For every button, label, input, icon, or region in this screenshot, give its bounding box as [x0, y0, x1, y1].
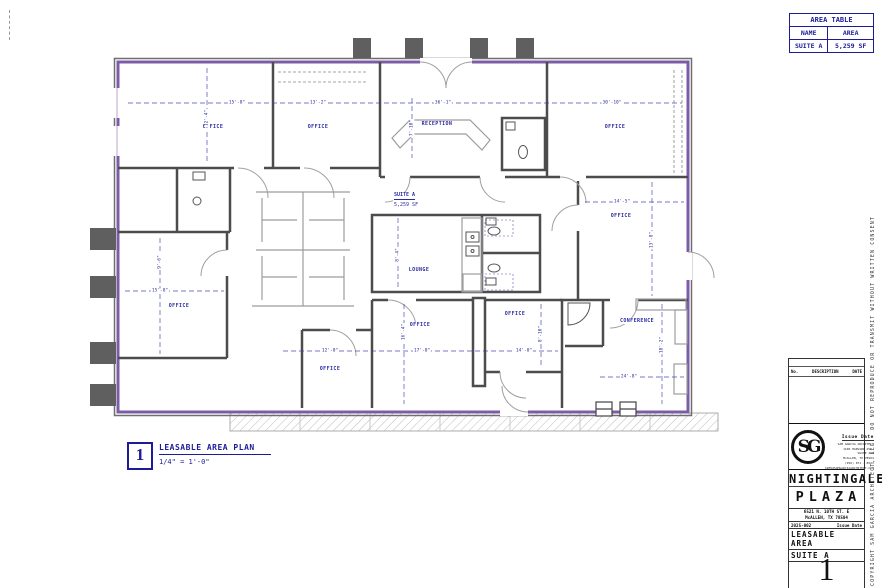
suite-area-label: SUITE A 5,259 SF	[393, 192, 419, 208]
title-block: No. DESCRIPTION DATE SG Issue Date SAM G…	[788, 358, 865, 588]
area-table-header: NAME AREA	[789, 27, 874, 40]
dimension-label: 12'-4"	[205, 109, 210, 127]
sheet-title-line1: LEASABLE AREA	[789, 529, 864, 550]
area-table-suite-name: SUITE A	[790, 40, 828, 52]
dimension-label: 7'-10"	[410, 119, 415, 137]
project-address: 6521 N. 10TH ST. E McALLEN, TX 78504	[789, 509, 864, 522]
dimension-label: 15'-8"	[151, 289, 169, 294]
copyright-strip: COPYRIGHT SAM GARCIA ARCHITECT, LLC - DO…	[866, 0, 880, 586]
dimension-label: 14'-5"	[613, 200, 631, 205]
sheet-title: LEASABLE AREA SUITE A	[789, 529, 864, 551]
room-label: OFFICE	[503, 311, 527, 317]
rev-col-date: DATE	[852, 369, 862, 374]
drawing-sheet: OFFICEOFFICERECEPTIONOFFICEOFFICECONFERE…	[0, 0, 882, 588]
dimension-label: 14'-0"	[515, 349, 533, 354]
room-label: OFFICE	[408, 322, 432, 328]
dimension-label: 30'-10"	[602, 101, 623, 106]
project-number: 2025-002	[791, 523, 811, 528]
room-label: CONFERENCE	[618, 318, 656, 324]
architect-logo: SG	[791, 430, 825, 464]
detail-number-box: 1	[127, 442, 153, 470]
floor-plan-drawing	[0, 0, 882, 588]
project-name-line2: PLAZA	[789, 487, 864, 505]
architect-stamp: SG Issue Date SAM GARCIA ARCHITECT 1100 …	[789, 424, 864, 470]
dimension-label: 13'-8"	[650, 231, 655, 249]
dimension-label: 15'-8"	[228, 101, 246, 106]
drawing-title: 1 LEASABLE AREA PLAN 1/4" = 1'-0"	[127, 442, 271, 470]
dimension-label: 24'-8"	[620, 375, 638, 380]
revision-table: No. DESCRIPTION DATE	[789, 359, 864, 424]
dimension-label: 36'-1"	[434, 101, 452, 106]
dimension-label: 8'-10"	[539, 325, 544, 343]
room-label: OFFICE	[306, 124, 330, 130]
dimension-label: 9'-6"	[158, 254, 163, 270]
dimension-label: 13'-2"	[309, 101, 327, 106]
project-name-line1: NIGHTINGALE	[789, 470, 864, 487]
room-label: OFFICE	[609, 213, 633, 219]
rev-col-no: No.	[791, 369, 798, 374]
copyright-text: COPYRIGHT SAM GARCIA ARCHITECT, LLC - DO…	[870, 216, 876, 586]
room-label: RECEPTION	[420, 121, 455, 127]
dimension-label: 16'-4"	[402, 323, 407, 341]
architect-logo-text: SG	[798, 437, 819, 457]
trim-mark	[9, 10, 15, 40]
room-label: OFFICE	[167, 303, 191, 309]
dimension-label: 8'-4"	[396, 247, 401, 263]
area-table-row: SUITE A 5,259 SF	[789, 40, 874, 53]
room-label: OFFICE	[318, 366, 342, 372]
project-meta: 2025-002 Issue Date	[789, 522, 864, 529]
dimension-label: 17'-0"	[413, 349, 431, 354]
area-table: AREA TABLE NAME AREA SUITE A 5,259 SF	[789, 13, 874, 53]
dimension-label: 18'-2"	[660, 336, 665, 354]
issue-date-label-2: Issue Date	[837, 523, 862, 528]
dimension-label: 12'-0"	[321, 349, 339, 354]
project-name: NIGHTINGALE PLAZA	[789, 470, 864, 509]
area-table-title: AREA TABLE	[789, 13, 874, 27]
drawing-scale: 1/4" = 1'-0"	[159, 455, 271, 466]
sheet-number: 1	[789, 551, 864, 588]
room-label: LOUNGE	[407, 267, 431, 273]
drawing-title-text: LEASABLE AREA PLAN	[159, 443, 271, 455]
suite-area-value: 5,259 SF	[394, 202, 418, 208]
area-table-col-name: NAME	[790, 27, 828, 39]
suite-name: SUITE A	[394, 192, 415, 200]
project-address-line2: McALLEN, TX 78504	[789, 515, 864, 521]
rev-col-description: DESCRIPTION	[812, 369, 839, 374]
room-label: OFFICE	[603, 124, 627, 130]
exterior-wall	[118, 62, 688, 412]
